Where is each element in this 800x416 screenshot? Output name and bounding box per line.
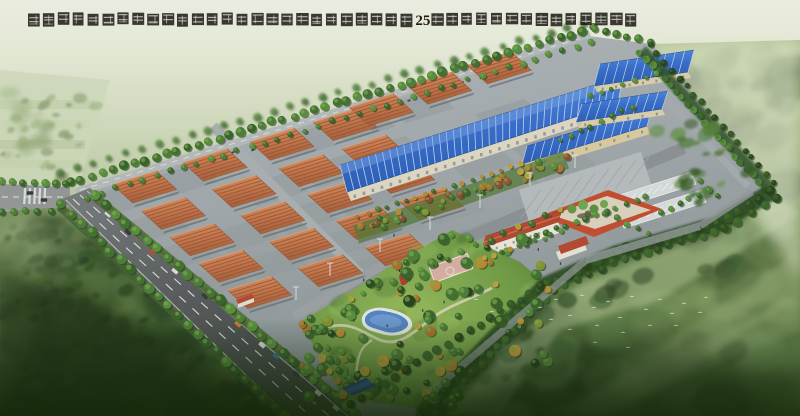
svg-text:25: 25 (415, 13, 430, 29)
